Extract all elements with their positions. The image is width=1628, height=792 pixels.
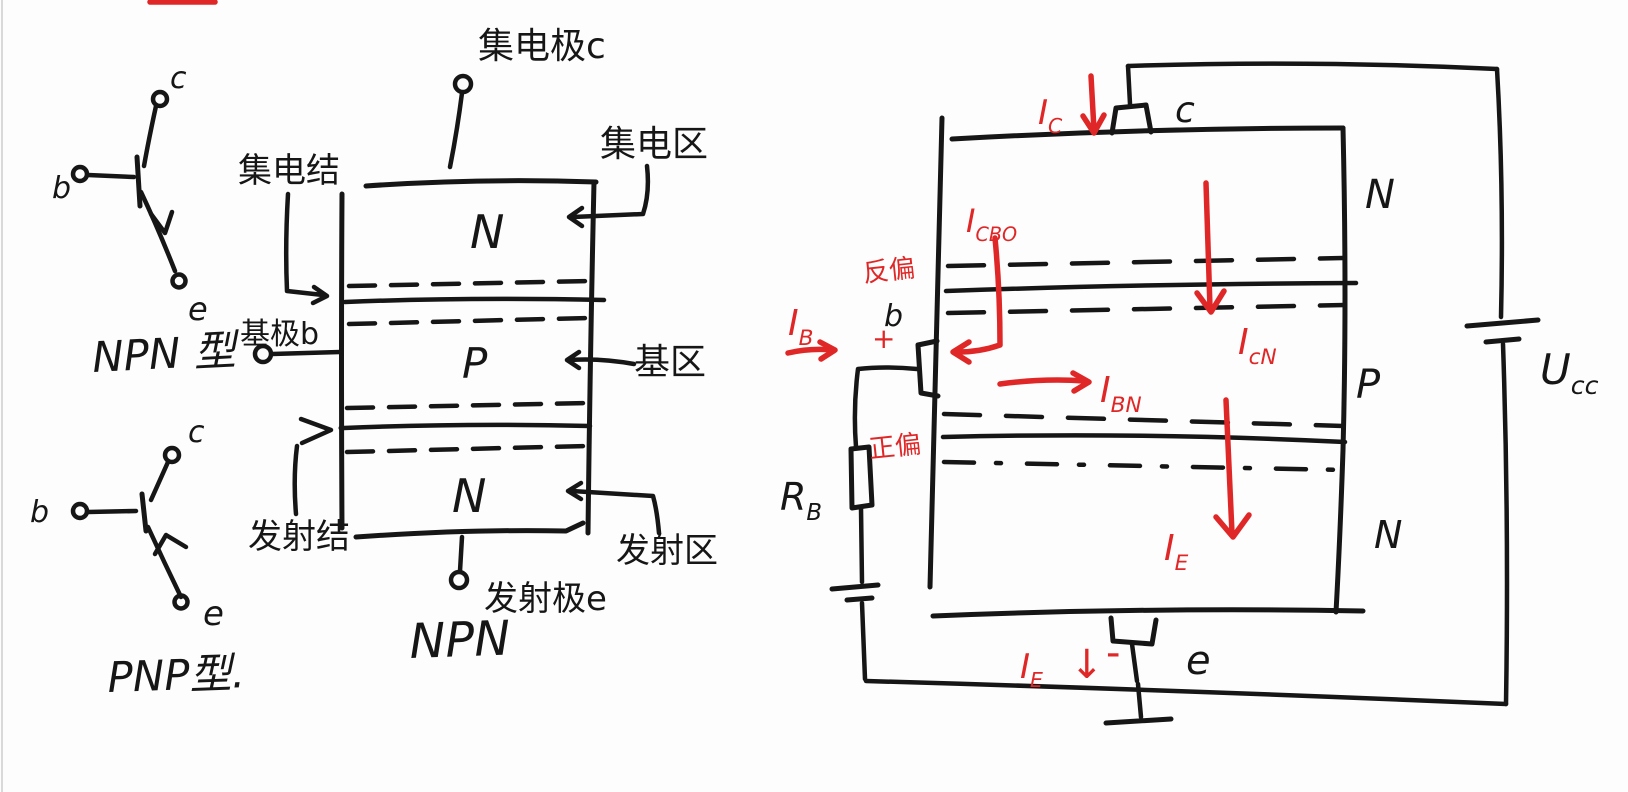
right-wire-upper [1497, 69, 1502, 317]
ic-label-main: I [1038, 93, 1048, 133]
ie-bottom-label-sub: E [1030, 668, 1043, 692]
collector-terminal-label: 集电极c [478, 26, 606, 67]
collector-junction-line [345, 299, 604, 302]
be-junction-dash-top [944, 414, 1343, 426]
collector-region-callout [573, 166, 648, 217]
collector-region-label: 集电区 [600, 124, 708, 165]
collector-c-label: c [1175, 90, 1195, 131]
ucc-battery-plate-short [1486, 339, 1519, 342]
region-p-mid: P [462, 339, 488, 388]
ucc-label-main: U [1540, 345, 1571, 394]
pnp-base-wire [88, 511, 136, 512]
npn-collector-wire [144, 106, 156, 166]
pnp-e-label: e [203, 594, 224, 634]
structure-box-top [366, 181, 596, 186]
be-junction-line [943, 435, 1345, 442]
pnp-b-terminal [73, 504, 87, 518]
emitter-region-label: 发射区 [616, 531, 718, 571]
circuit-box-top [952, 128, 1343, 139]
base-region-label: 基区 [634, 342, 706, 383]
emitter-junction-label: 发射结 [248, 517, 350, 557]
npn-base-wire [88, 175, 134, 177]
structure-diagram: 集电极c N P N 集电结 集电区 基极b 基区 发射结 发射区 [238, 26, 718, 670]
ibn-arrow [1000, 380, 1085, 384]
pnp-caption: PNP型. [107, 648, 246, 702]
npn-c-terminal [153, 92, 167, 106]
icn-label-sub: cN [1249, 345, 1277, 370]
npn-b-label: b [52, 171, 71, 206]
circuit-region-n-top: N [1365, 172, 1395, 218]
ie-label: IE [1164, 528, 1189, 576]
pnp-collector-wire [151, 462, 168, 500]
collector-wire-up [1128, 66, 1130, 104]
whiteboard-sketch: c b e NPN 型 c b e PNP型. 集电极c [0, 0, 1628, 792]
right-wire-lower [1503, 344, 1507, 704]
region-n-bottom: N [452, 469, 486, 523]
emitter-region-callout [572, 491, 659, 533]
npn-base-bar [137, 157, 140, 206]
npn-e-label: e [188, 290, 208, 328]
emitter-junction-callout [295, 446, 297, 514]
cb-junction-dash-top [948, 258, 1343, 266]
circuit-region-p: P [1356, 362, 1381, 408]
forward-bias-label: 正偏 [868, 430, 923, 465]
circuit-region-n-bottom: N [1374, 513, 1402, 557]
npn-b-terminal [73, 167, 87, 181]
structure-caption: NPN [408, 611, 511, 670]
npn-emitter-wire [141, 192, 175, 271]
cb-junction-dash-bottom [948, 305, 1345, 313]
plus-sign: + [872, 322, 895, 355]
ucc-label-sub: cc [1571, 371, 1599, 400]
base-stem [272, 352, 340, 354]
collector-junction-dash-top [349, 281, 588, 286]
pnp-c-terminal [165, 448, 179, 462]
ic-label-sub: C [1048, 114, 1063, 138]
emitter-wire-down [1132, 644, 1137, 681]
collector-junction-callout [286, 194, 323, 295]
collector-junction-label: 集电结 [238, 151, 340, 191]
collector-stem [450, 93, 462, 167]
bottom-wire [866, 681, 1506, 704]
ucc-label: Ucc [1540, 345, 1599, 400]
rb-label: RB [780, 475, 822, 526]
icn-label: IcN [1238, 322, 1277, 370]
ie-bottom-label-main: I [1020, 647, 1030, 687]
base-region-callout [570, 360, 634, 365]
pnp-symbol: c b e PNP型. [30, 415, 246, 702]
rb-label-sub: B [806, 500, 822, 526]
minus-sign: - [1106, 630, 1120, 676]
icn-label-main: I [1238, 322, 1249, 363]
ib-arrow [788, 349, 832, 353]
emitter-junction-arrowhead [301, 419, 331, 443]
emitter-e-label: e [1186, 638, 1211, 684]
region-n-top: N [470, 205, 504, 259]
circuit-box-left [930, 118, 942, 587]
ie-bottom-arrow: ↓ [1070, 642, 1104, 688]
circuit-box-right [1336, 128, 1345, 612]
pnp-e-terminal [175, 596, 188, 609]
collector-terminal-node [455, 76, 471, 92]
ucc-battery-plate-long [1467, 320, 1538, 326]
emitter-terminal-node [451, 572, 467, 588]
circuit-box-bottom [933, 610, 1363, 616]
circuit-diagram: Ucc c RB b e N P N IC ICBO 反偏 + IB [780, 64, 1599, 723]
pnp-c-label: c [188, 415, 205, 450]
base-wire-to-bottom [862, 603, 865, 679]
ic-arrow [1091, 76, 1094, 130]
ie-bottom-label: IE [1020, 647, 1043, 692]
top-wire [1128, 64, 1497, 69]
ib-label: IB [788, 303, 813, 351]
ie-label-sub: E [1175, 551, 1189, 576]
npn-caption: NPN 型 [91, 325, 242, 382]
ib-label-main: I [788, 303, 799, 344]
structure-box-left [342, 194, 343, 528]
emitter-junction-line [344, 425, 590, 428]
npn-symbol: c b e NPN 型 [52, 61, 242, 382]
pnp-b-label: b [30, 495, 49, 530]
ie-arrow [1226, 400, 1232, 533]
emitter-junction-dash-bottom [347, 446, 586, 452]
emitter-stub-bar [1106, 719, 1171, 723]
icn-arrow [1206, 183, 1210, 308]
ibn-label: IBN [1100, 370, 1142, 418]
npn-c-label: c [170, 61, 187, 96]
icbo-arrow [958, 238, 1000, 352]
be-junction-dash-bottom [944, 462, 1345, 470]
ibn-label-sub: BN [1111, 393, 1142, 418]
ie-label-main: I [1164, 528, 1175, 569]
icbo-label: ICBO [966, 202, 1017, 246]
pnp-base-bar [142, 494, 146, 531]
emitter-junction-dash-top [347, 403, 586, 408]
emitter-stem [460, 537, 462, 571]
ic-label: IC [1038, 93, 1063, 138]
base-terminal-label: 基极b [240, 317, 319, 352]
rb-label-main: R [780, 475, 806, 519]
base-battery-plate-short [847, 598, 872, 600]
emitter-junction-dot [339, 426, 344, 431]
structure-box-bottom [356, 523, 583, 537]
emitter-stub-wire [1138, 684, 1141, 717]
collector-junction-dash-bottom [349, 318, 588, 324]
npn-e-terminal [173, 275, 186, 288]
cb-junction-line [946, 283, 1356, 291]
reverse-bias-label: 反偏 [862, 254, 917, 289]
base-battery-plate-long [832, 585, 878, 589]
ibn-label-main: I [1100, 370, 1111, 411]
rb-wire-down [861, 508, 862, 582]
icbo-label-main: I [966, 202, 975, 240]
